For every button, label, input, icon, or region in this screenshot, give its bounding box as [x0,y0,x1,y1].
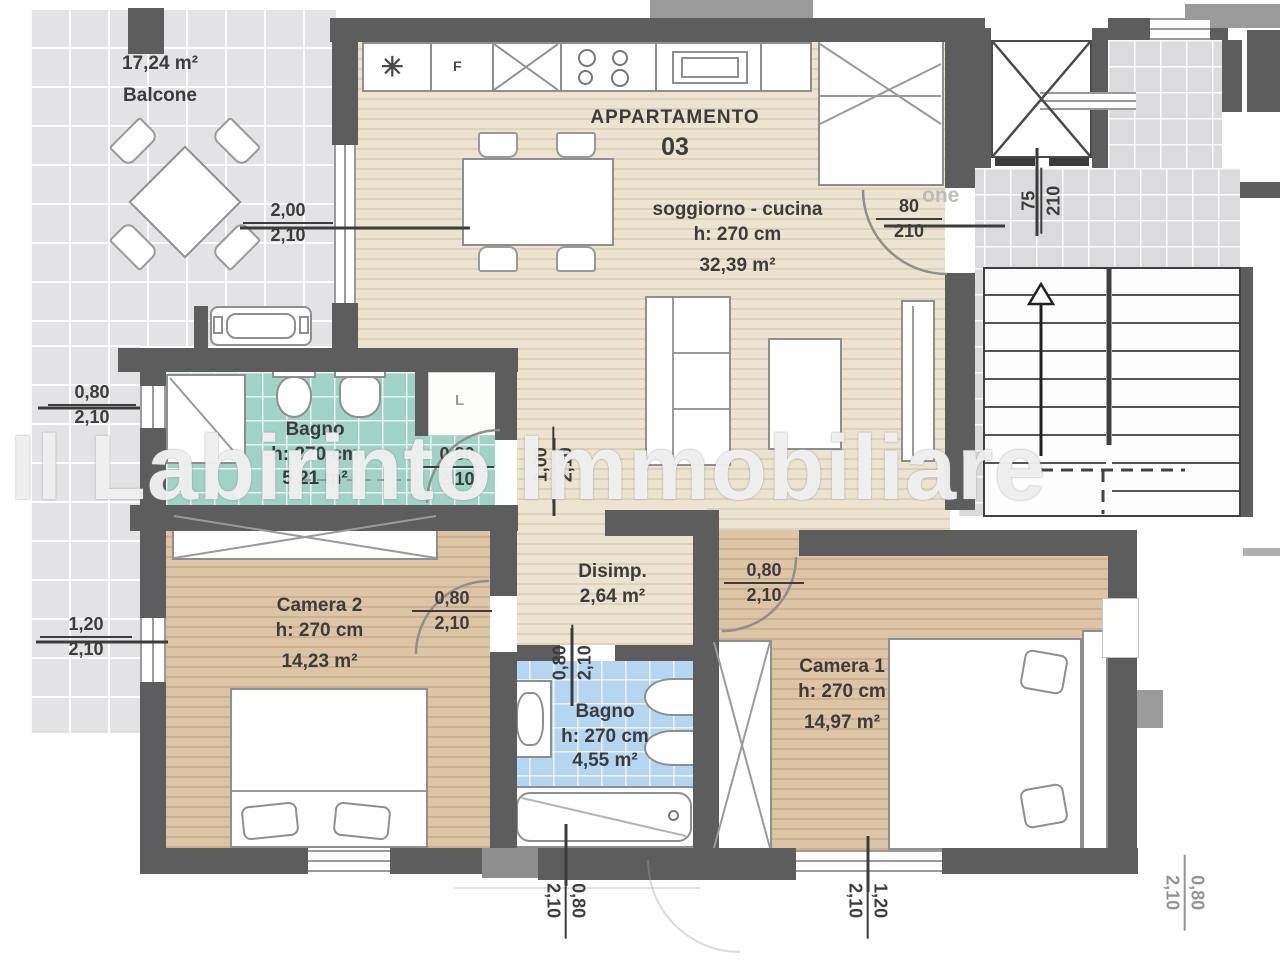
dim-camera2-window: 1,20 2,10 [40,614,132,659]
dim-balcony-door: 2,00 2,10 [243,200,333,245]
bathroom2-label: Bagno h: 270 cm 4,55 m² [540,700,670,774]
room-area: 32,39 m² [640,254,835,279]
room-area: 14,97 m² [762,711,922,736]
room-height: h: 270 cm [242,619,397,644]
bedroom1-label: Camera 1 h: 270 cm 14,97 m² [762,655,922,736]
apartment-title-line1: APPARTAMENTO [590,106,760,131]
dim-neighbor-window: 0,80 2,10 [1162,855,1207,931]
dim-entrance-door: 80 210 [876,196,942,241]
apartment-title: APPARTAMENTO 03 [590,106,760,163]
dim-camera1-door: 0,80 2,10 [724,560,804,605]
balcony-name-label: Balcone [95,84,225,109]
balcony-name: Balcone [95,84,225,109]
room-name: soggiorno - cucina [640,198,835,223]
bedroom2-label: Camera 2 h: 270 cm 14,23 m² [242,594,397,675]
room-name: Camera 1 [762,655,922,680]
room-area: 2,64 m² [545,585,680,610]
hallway-label: Disimp. 2,64 m² [545,560,680,609]
room-name: Disimp. [545,560,680,585]
room-name: Bagno [540,700,670,725]
dim-bagno2-window: 0,80 2,10 [543,863,588,939]
room-height: h: 270 cm [762,680,922,705]
dim-elevator-door: 75 210 [1018,168,1063,234]
dim-camera2-door: 0,80 2,10 [412,588,492,633]
balcony-area: 17,24 m² [95,52,225,77]
floor-plan: ✳ F L [0,0,1280,960]
room-height: h: 270 cm [640,223,835,248]
living-room-label: soggiorno - cucina h: 270 cm 32,39 m² [640,198,835,279]
dim-bagno2-door: 0,80 2,10 [549,625,594,701]
balcony-area-label: 17,24 m² [95,52,225,77]
room-height: h: 270 cm [540,725,670,750]
room-area: 14,23 m² [242,650,397,675]
dim-camera1-window: 1,20 2,10 [845,863,890,939]
room-name: Camera 2 [242,594,397,619]
apartment-title-line2: 03 [590,131,760,164]
watermark: Il Labirinto Immobiliare [10,416,1272,521]
room-area: 4,55 m² [540,749,670,774]
